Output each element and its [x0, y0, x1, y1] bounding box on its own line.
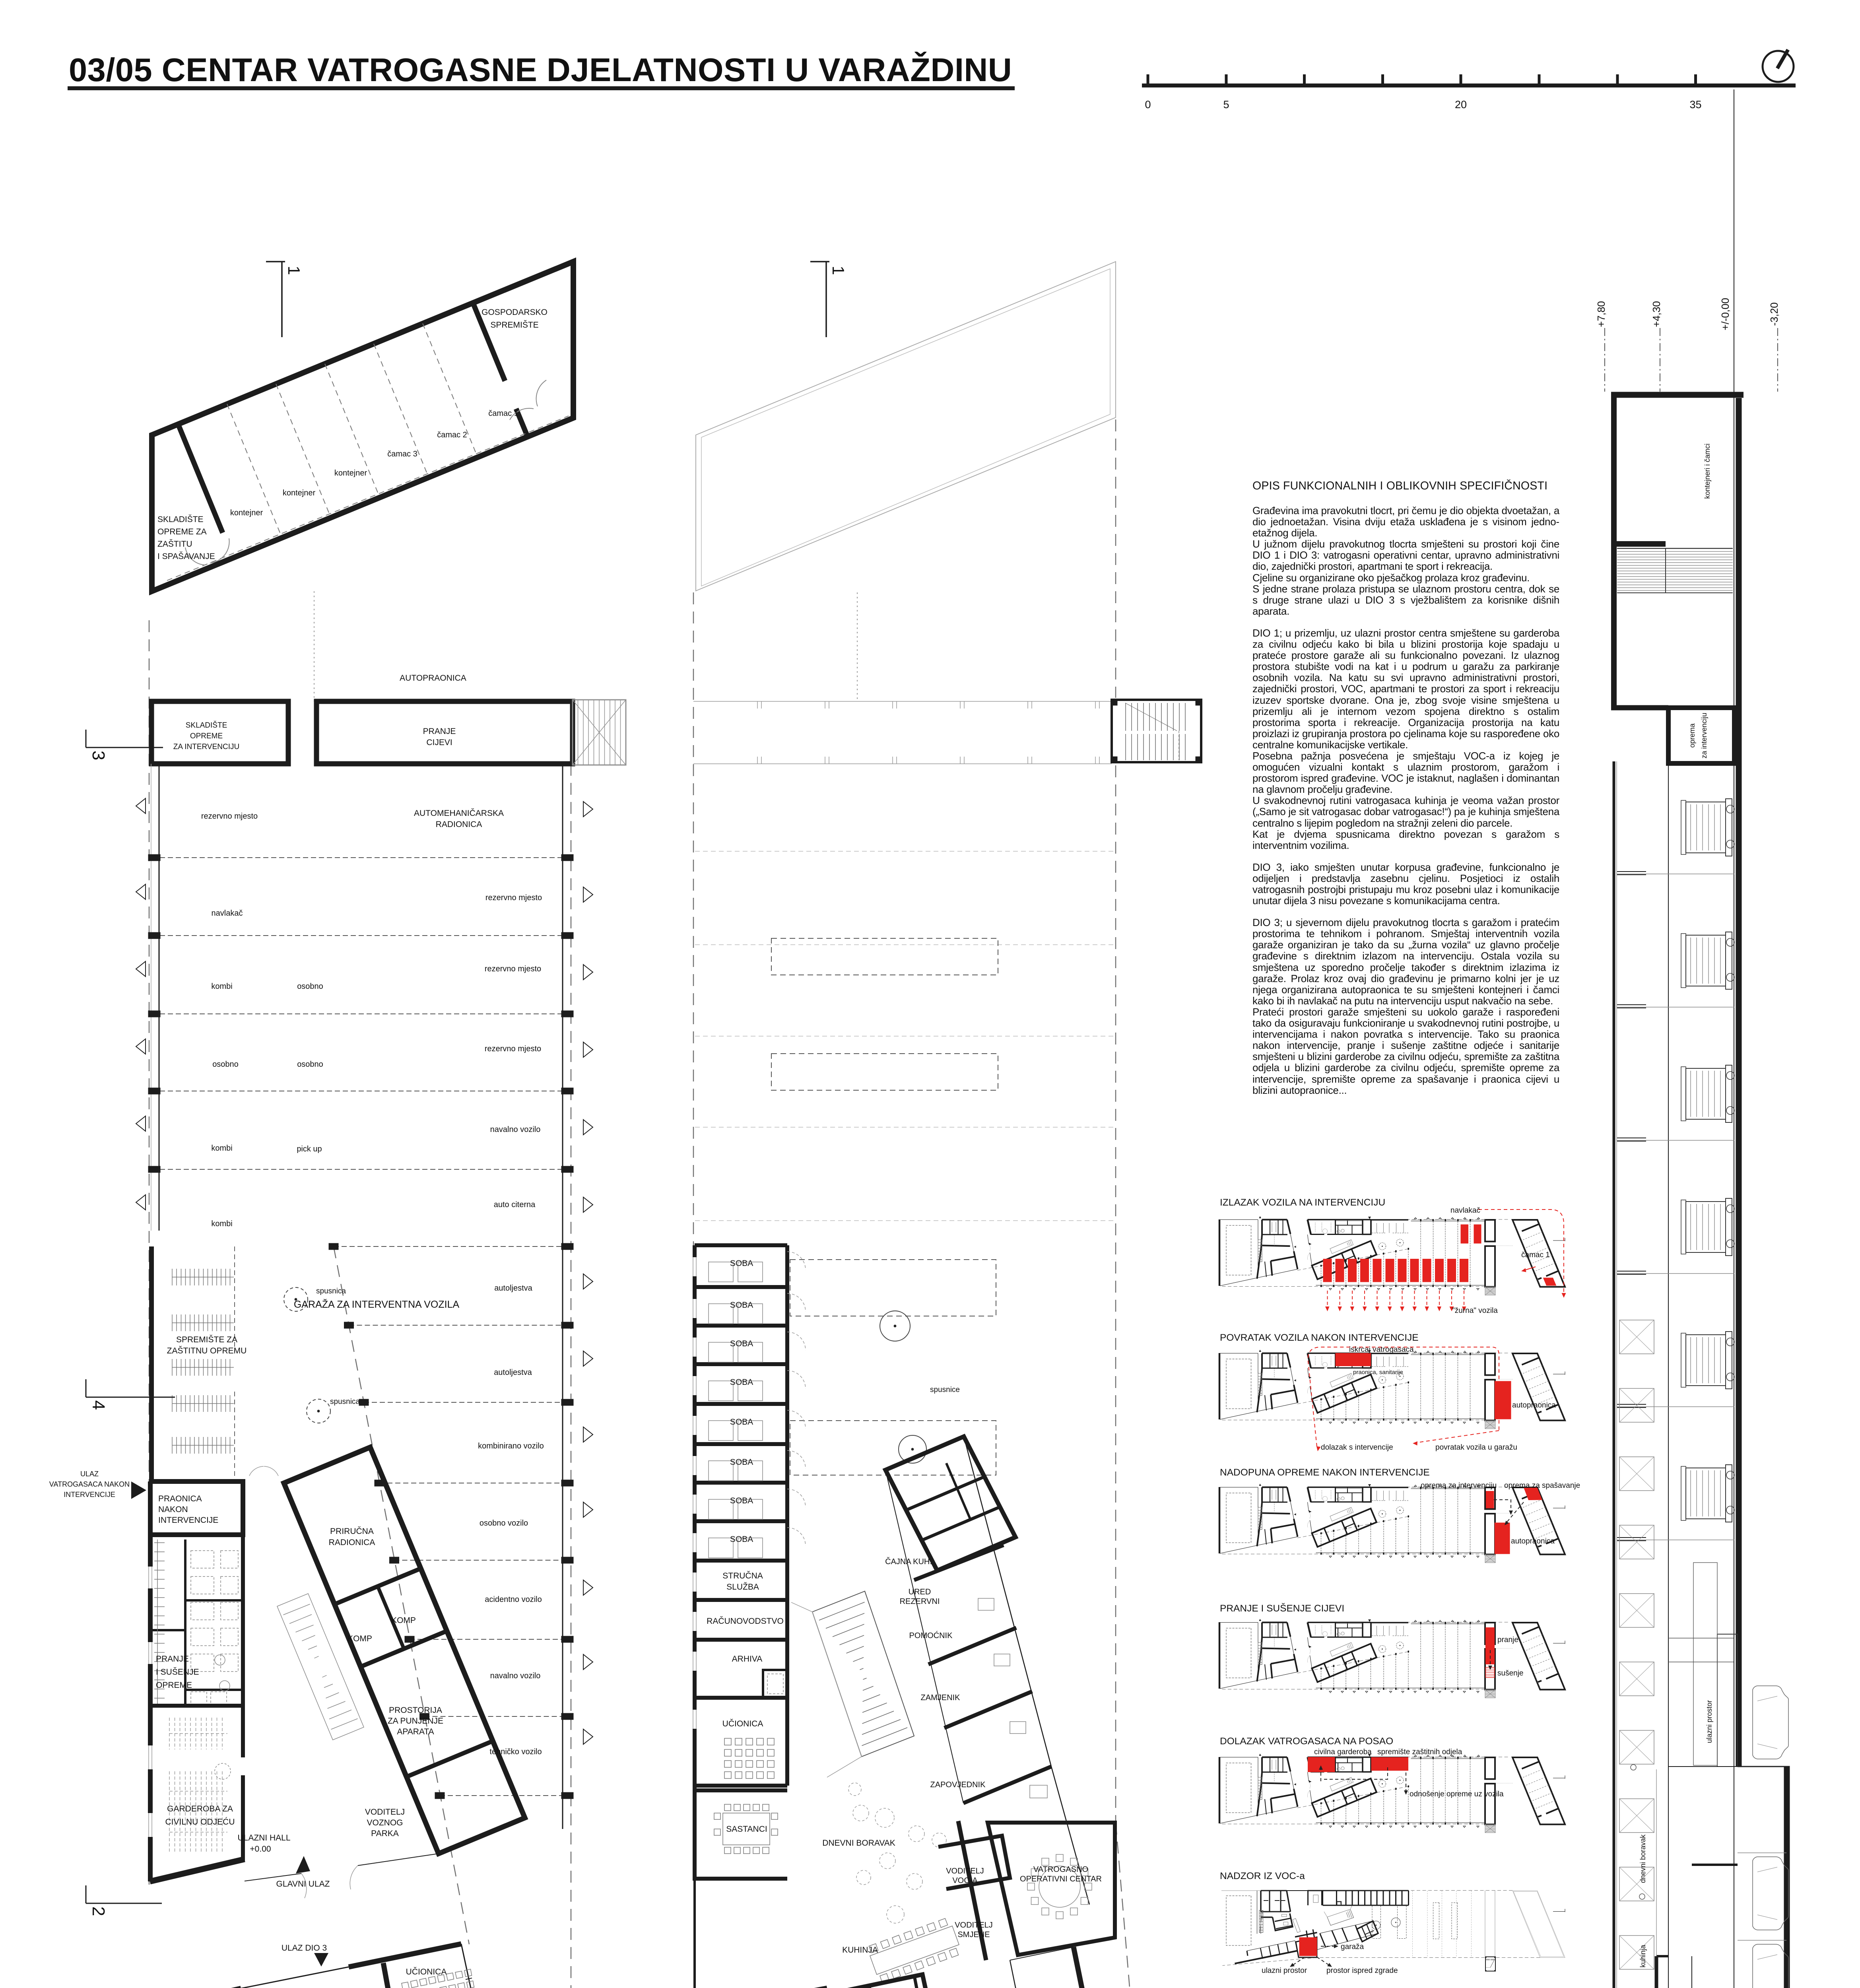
svg-text:SMJENE: SMJENE	[957, 1930, 990, 1939]
svg-text:čamac 2: čamac 2	[437, 431, 467, 439]
svg-text:I SPAŠAVANJE: I SPAŠAVANJE	[157, 552, 215, 561]
svg-text:SKLADIŠTE: SKLADIŠTE	[186, 721, 227, 730]
svg-text:povratak vozila u garažu: povratak vozila u garažu	[1435, 1443, 1517, 1452]
svg-text:DOLAZAK VATROGASACA NA POSAO: DOLAZAK VATROGASACA NA POSAO	[1220, 1736, 1393, 1747]
svg-text:rezervno mjesto: rezervno mjesto	[485, 893, 542, 902]
svg-text:GARAŽA ZA INTERVENTNA VOZILA: GARAŽA ZA INTERVENTNA VOZILA	[294, 1299, 460, 1310]
svg-text:osobno: osobno	[297, 982, 323, 991]
svg-text:OPREME ZA: OPREME ZA	[157, 527, 207, 536]
svg-text:AUTOMEHANIČARSKA: AUTOMEHANIČARSKA	[414, 809, 504, 818]
svg-text:1: 1	[829, 266, 848, 275]
svg-text:STRUČNA: STRUČNA	[722, 1571, 763, 1580]
svg-text:1: 1	[285, 266, 303, 275]
svg-text:ARHIVA: ARHIVA	[732, 1654, 763, 1664]
svg-text:ULAZ DIO 3: ULAZ DIO 3	[282, 1943, 327, 1953]
svg-text:VODITELJ: VODITELJ	[946, 1867, 984, 1875]
svg-text:0: 0	[1145, 99, 1151, 111]
svg-text:DNEVNI BORAVAK: DNEVNI BORAVAK	[822, 1839, 895, 1848]
svg-text:OPREME: OPREME	[190, 732, 223, 740]
svg-text:kombi: kombi	[211, 1219, 232, 1228]
svg-text:kontejner: kontejner	[283, 489, 316, 497]
svg-text:ZAMJENIK: ZAMJENIK	[921, 1693, 961, 1702]
svg-text:SOBA: SOBA	[730, 1301, 753, 1310]
svg-text:ZAŠTITU: ZAŠTITU	[157, 540, 192, 549]
svg-text:autoljestva: autoljestva	[494, 1284, 532, 1293]
svg-text:-3,20: -3,20	[1768, 302, 1780, 326]
svg-text:UČIONICA: UČIONICA	[722, 1719, 763, 1728]
svg-text:autopraonica: autopraonica	[1511, 1537, 1555, 1545]
svg-text:GOSPODARSKO: GOSPODARSKO	[482, 308, 548, 317]
svg-text:3: 3	[89, 751, 108, 760]
svg-text:garaža: garaža	[1341, 1943, 1364, 1951]
svg-text:URED: URED	[909, 1588, 931, 1596]
svg-text:RADIONICA: RADIONICA	[329, 1538, 375, 1547]
svg-text:APARATA: APARATA	[397, 1727, 434, 1736]
svg-text:PRANJE: PRANJE	[423, 727, 456, 736]
svg-text:kontejneri i čamci: kontejneri i čamci	[1703, 443, 1711, 499]
svg-text:spusnica: spusnica	[316, 1287, 346, 1295]
svg-text:POVRATAK VOZILA NAKON INTERVEN: POVRATAK VOZILA NAKON INTERVENCIJE	[1220, 1332, 1419, 1343]
svg-text:rezervno mjesto: rezervno mjesto	[485, 1044, 541, 1053]
svg-text:IZLAZAK VOZILA NA INTERVENCIJU: IZLAZAK VOZILA NA INTERVENCIJU	[1220, 1197, 1385, 1208]
svg-text:CIVILNU ODJEĆU: CIVILNU ODJEĆU	[165, 1817, 235, 1827]
svg-text:sušenje: sušenje	[1497, 1669, 1524, 1677]
svg-text:oprema za intervenciju: oprema za intervenciju	[1421, 1481, 1497, 1490]
svg-text:SOBA: SOBA	[730, 1458, 753, 1467]
svg-text:+0.00: +0.00	[250, 1844, 271, 1854]
svg-text:REZERVNI: REZERVNI	[900, 1597, 940, 1606]
svg-text:UČIONICA: UČIONICA	[406, 1967, 447, 1976]
svg-text:GARDEROBA ZA: GARDEROBA ZA	[167, 1804, 233, 1813]
svg-text:I SUŠENJE: I SUŠENJE	[156, 1668, 199, 1677]
svg-text:POMOĆNIK: POMOĆNIK	[909, 1631, 953, 1640]
svg-text:SLUŽBA: SLUŽBA	[726, 1582, 759, 1592]
svg-text:osobno vozilo: osobno vozilo	[480, 1519, 528, 1528]
svg-text:navlakač: navlakač	[1450, 1206, 1480, 1215]
svg-text:civilna garderoba: civilna garderoba	[1314, 1748, 1372, 1756]
svg-text:ULAZ: ULAZ	[80, 1470, 99, 1478]
svg-text:auto citerna: auto citerna	[494, 1200, 536, 1209]
svg-text:AUTOPRAONICA: AUTOPRAONICA	[400, 674, 466, 683]
svg-text:ULAZNI HALL: ULAZNI HALL	[237, 1833, 290, 1842]
svg-text:OPREME: OPREME	[156, 1681, 192, 1690]
svg-text:acidentno vozilo: acidentno vozilo	[485, 1595, 542, 1604]
svg-text:PRANJE: PRANJE	[156, 1654, 189, 1664]
svg-text:+4,30: +4,30	[1650, 301, 1662, 327]
svg-text:kuhinja: kuhinja	[1639, 1944, 1647, 1967]
svg-text:ZA INTERVENCIJU: ZA INTERVENCIJU	[173, 743, 239, 751]
svg-text:"žurna" vozila: "žurna" vozila	[1452, 1307, 1498, 1315]
svg-text:SOBA: SOBA	[730, 1378, 753, 1387]
svg-text:PRAONICA: PRAONICA	[158, 1494, 202, 1503]
svg-text:NAKON: NAKON	[158, 1505, 188, 1514]
svg-text:kontejner: kontejner	[230, 509, 263, 517]
svg-text:ZAPOVJEDNIK: ZAPOVJEDNIK	[930, 1780, 986, 1789]
svg-text:VATROGASACA NAKON: VATROGASACA NAKON	[49, 1480, 130, 1488]
svg-text:spusnica: spusnica	[330, 1398, 360, 1406]
svg-text:navalno vozilo: navalno vozilo	[490, 1672, 541, 1680]
svg-text:35: 35	[1689, 99, 1701, 111]
svg-text:osobno: osobno	[297, 1060, 323, 1069]
svg-text:ulazni prostor: ulazni prostor	[1705, 1700, 1713, 1743]
svg-text:kontejner: kontejner	[334, 469, 367, 478]
svg-text:SOBA: SOBA	[730, 1496, 753, 1505]
svg-text:SPREMIŠTE ZA: SPREMIŠTE ZA	[176, 1335, 237, 1344]
svg-text:20: 20	[1455, 99, 1467, 111]
svg-text:praonica, sanitarije: praonica, sanitarije	[1353, 1369, 1403, 1376]
svg-text:+7,80: +7,80	[1595, 301, 1607, 327]
svg-text:spremište zaštitnih odjela: spremište zaštitnih odjela	[1377, 1748, 1462, 1756]
svg-text:rezervno mjesto: rezervno mjesto	[201, 812, 258, 821]
svg-text:čamac 1: čamac 1	[1521, 1251, 1550, 1259]
svg-text:GLAVNI ULAZ: GLAVNI ULAZ	[276, 1879, 330, 1889]
svg-text:iskrcaj vatrogasaca: iskrcaj vatrogasaca	[1349, 1345, 1414, 1354]
svg-text:INTERVENCIJE: INTERVENCIJE	[64, 1491, 115, 1499]
svg-text:+/-0,00: +/-0,00	[1719, 298, 1731, 330]
svg-text:PROSTORIJA: PROSTORIJA	[389, 1706, 442, 1715]
svg-text:PARKA: PARKA	[371, 1829, 399, 1838]
svg-text:NADOPUNA OPREME NAKON INTERVEN: NADOPUNA OPREME NAKON INTERVENCIJE	[1220, 1467, 1430, 1478]
svg-text:čamac 3: čamac 3	[387, 450, 417, 458]
svg-text:dolazak s intervencije: dolazak s intervencije	[1321, 1443, 1393, 1452]
svg-text:rezervno mjesto: rezervno mjesto	[485, 965, 541, 973]
svg-text:PRANJE I SUŠENJE CIJEVI: PRANJE I SUŠENJE CIJEVI	[1220, 1603, 1344, 1614]
svg-text:za intervenciju: za intervenciju	[1700, 712, 1708, 758]
svg-text:dnevni boravak: dnevni boravak	[1639, 1834, 1647, 1883]
svg-text:NADZOR IZ VOC-a: NADZOR IZ VOC-a	[1220, 1871, 1305, 1881]
svg-text:ČAJNA KUH.: ČAJNA KUH.	[885, 1557, 932, 1566]
svg-text:2: 2	[89, 1906, 108, 1916]
svg-text:SOBA: SOBA	[730, 1535, 753, 1544]
svg-text:ZAŠTITNU OPREMU: ZAŠTITNU OPREMU	[167, 1346, 247, 1355]
svg-text:SASTANCI: SASTANCI	[726, 1825, 767, 1834]
svg-text:KOMP: KOMP	[348, 1634, 372, 1643]
svg-text:SOBA: SOBA	[730, 1259, 753, 1268]
svg-text:osobno: osobno	[212, 1060, 239, 1069]
svg-text:VOC-A: VOC-A	[952, 1876, 978, 1885]
svg-text:SKLADIŠTE: SKLADIŠTE	[157, 515, 204, 524]
svg-text:autoljestva: autoljestva	[494, 1368, 532, 1377]
svg-text:navlakač: navlakač	[212, 909, 243, 918]
svg-text:VODITELJ: VODITELJ	[955, 1921, 993, 1930]
svg-text:VATROGASNO: VATROGASNO	[1033, 1865, 1088, 1874]
svg-text:VODITELJ: VODITELJ	[365, 1807, 405, 1817]
svg-text:OPERATIVNI CENTAR: OPERATIVNI CENTAR	[1020, 1875, 1102, 1883]
svg-text:SPREMIŠTE: SPREMIŠTE	[490, 320, 538, 330]
svg-text:RAČUNOVODSTVO: RAČUNOVODSTVO	[707, 1617, 784, 1626]
svg-text:navalno vozilo: navalno vozilo	[490, 1125, 541, 1134]
svg-text:INTERVENCIJE: INTERVENCIJE	[158, 1516, 218, 1525]
svg-text:kombinirano vozilo: kombinirano vozilo	[478, 1442, 544, 1450]
svg-text:5: 5	[1223, 99, 1229, 111]
svg-text:odnošenje opreme uz vozila: odnošenje opreme uz vozila	[1410, 1790, 1504, 1798]
svg-text:autopraonica: autopraonica	[1512, 1401, 1556, 1409]
svg-text:kombi: kombi	[211, 1144, 232, 1153]
svg-text:ulazni prostor: ulazni prostor	[1262, 1967, 1307, 1975]
svg-text:čamac 1: čamac 1	[488, 409, 518, 418]
svg-text:SOBA: SOBA	[730, 1417, 753, 1427]
svg-text:RADIONICA: RADIONICA	[436, 820, 482, 829]
svg-text:oprema za spašavanje: oprema za spašavanje	[1504, 1481, 1580, 1490]
svg-text:PRIRUČNA: PRIRUČNA	[330, 1527, 374, 1536]
svg-text:03/05 CENTAR VATROGASNE DJELA: 03/05 CENTAR VATROGASNE DJELATNOSTI U VA…	[69, 51, 1012, 88]
svg-text:oprema: oprema	[1688, 723, 1696, 747]
svg-text:CIJEVI: CIJEVI	[426, 738, 452, 747]
svg-text:SOBA: SOBA	[730, 1339, 753, 1348]
svg-text:KOMP: KOMP	[391, 1616, 416, 1625]
svg-text:spusnice: spusnice	[930, 1386, 960, 1394]
svg-text:4: 4	[89, 1400, 108, 1410]
svg-text:pick up: pick up	[297, 1145, 322, 1153]
svg-text:VOZNOG: VOZNOG	[367, 1818, 403, 1827]
svg-text:pranje: pranje	[1497, 1636, 1518, 1644]
svg-text:tehničko vozilo: tehničko vozilo	[489, 1747, 542, 1756]
svg-text:prostor ispred zgrade: prostor ispred zgrade	[1326, 1967, 1398, 1975]
svg-text:ZA PUNJENJE: ZA PUNJENJE	[388, 1716, 443, 1726]
svg-text:KUHINJA: KUHINJA	[842, 1945, 878, 1955]
svg-text:kombi: kombi	[211, 982, 232, 991]
